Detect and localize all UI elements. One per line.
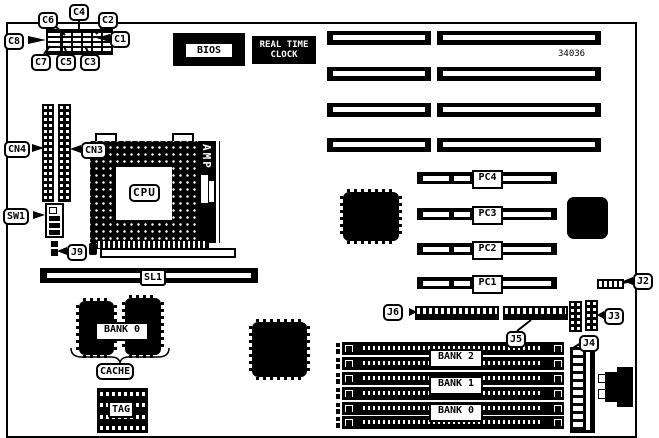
j3-header xyxy=(569,301,582,332)
simm-clip xyxy=(342,416,355,429)
j2-header xyxy=(597,279,624,289)
cn3-connector xyxy=(58,104,71,202)
isa-slot xyxy=(327,31,431,45)
keyboard-connector-tab xyxy=(598,374,606,383)
label-c8: C8 xyxy=(4,33,24,50)
chipset-chip xyxy=(343,192,399,241)
simm-clip xyxy=(342,387,355,400)
simm-endcap xyxy=(336,417,340,428)
simm-endcap xyxy=(336,358,340,369)
label-sl1: SL1 xyxy=(140,269,166,286)
label-j3: J3 xyxy=(604,308,624,325)
pci-slot-label: PC3 xyxy=(472,206,503,225)
pci-slot-pc4: PC4 xyxy=(417,172,557,184)
pci-slot-pc3: PC3 xyxy=(417,208,557,220)
label-c5: C5 xyxy=(56,54,76,71)
j6-connector xyxy=(415,306,499,320)
memory-bank-label: BANK 2 xyxy=(429,349,483,368)
pci-slot-label: PC1 xyxy=(472,275,503,294)
isa-slot xyxy=(437,67,601,81)
cpu-label: CPU xyxy=(129,184,160,202)
simm-clip xyxy=(551,357,564,370)
label-j2: J2 xyxy=(633,273,653,290)
label-c3: C3 xyxy=(80,54,100,71)
bios-chip-label: BIOS xyxy=(186,44,232,57)
simm-clip xyxy=(551,342,564,355)
j9-jumper xyxy=(51,241,58,247)
label-cn4: CN4 xyxy=(4,141,30,158)
part-number: 34036 xyxy=(558,49,585,59)
simm-clip xyxy=(551,387,564,400)
j4-connector xyxy=(570,347,595,433)
keyboard-connector-tab xyxy=(598,389,606,399)
j5-connector xyxy=(503,306,568,320)
label-j4: J4 xyxy=(579,335,599,352)
pci-slot-label: PC4 xyxy=(472,170,503,189)
label-c6: C6 xyxy=(38,12,58,29)
label-c4: C4 xyxy=(69,4,89,21)
isa-slot xyxy=(437,138,601,152)
label-j9: J9 xyxy=(67,244,87,261)
rtc-chip-label-line2: CLOCK xyxy=(252,50,316,60)
amp-regulator: AMP xyxy=(198,141,216,243)
memory-bank-label: BANK 1 xyxy=(429,376,483,395)
simm-clip xyxy=(342,372,355,385)
isa-slot xyxy=(327,138,431,152)
chipset-chip xyxy=(252,322,307,377)
isa-slot xyxy=(327,67,431,81)
cache-bank-label: BANK 0 xyxy=(95,322,149,341)
amp-edge-line xyxy=(219,141,220,243)
tag-chip-label: TAG xyxy=(108,401,134,418)
io-chip xyxy=(567,197,608,239)
label-sw1: SW1 xyxy=(3,208,29,225)
j9-jumper xyxy=(51,249,58,256)
simm-clip xyxy=(342,402,355,415)
label-cache: CACHE xyxy=(96,363,134,380)
cpu-bottom-block xyxy=(89,243,97,255)
simm-endcap xyxy=(336,403,340,414)
label-c1: C1 xyxy=(110,31,130,48)
j3-header xyxy=(585,300,598,331)
memory-bank-label: BANK 0 xyxy=(429,403,483,422)
label-c7: C7 xyxy=(31,54,51,71)
simm-endcap xyxy=(336,373,340,384)
bios-chip: BIOS xyxy=(173,33,245,66)
rtc-chip-label-line1: REAL TIME xyxy=(252,40,316,50)
label-j6: J6 xyxy=(383,304,403,321)
label-c2: C2 xyxy=(98,12,118,29)
pci-slot-pc1: PC1 xyxy=(417,277,557,289)
isa-slot xyxy=(327,103,431,117)
amp-label: AMP xyxy=(200,144,213,170)
simm-clip xyxy=(342,342,355,355)
motherboard-diagram: C6 C4 C2 C8 C1 C7 C5 C3 BIOS REAL TIME C… xyxy=(0,0,659,438)
simm-endcap xyxy=(336,343,340,354)
keyboard-connector xyxy=(617,367,633,407)
capacitor xyxy=(46,29,62,55)
rtc-chip: REAL TIME CLOCK xyxy=(252,36,316,64)
sw1-dip-switch xyxy=(45,203,64,238)
simm-clip xyxy=(342,357,355,370)
pci-slot-label: PC2 xyxy=(472,241,503,260)
simm-clip xyxy=(551,372,564,385)
simm-clip xyxy=(551,402,564,415)
label-cn3: CN3 xyxy=(81,142,107,159)
cn4-connector xyxy=(42,104,54,202)
simm-clip xyxy=(551,416,564,429)
isa-slot xyxy=(437,31,601,45)
keyboard-connector xyxy=(605,372,619,402)
pci-slot-pc2: PC2 xyxy=(417,243,557,255)
label-j5: J5 xyxy=(506,331,526,348)
simm-endcap xyxy=(336,388,340,399)
isa-slot xyxy=(437,103,601,117)
cpu-bottom-bar xyxy=(100,248,236,258)
